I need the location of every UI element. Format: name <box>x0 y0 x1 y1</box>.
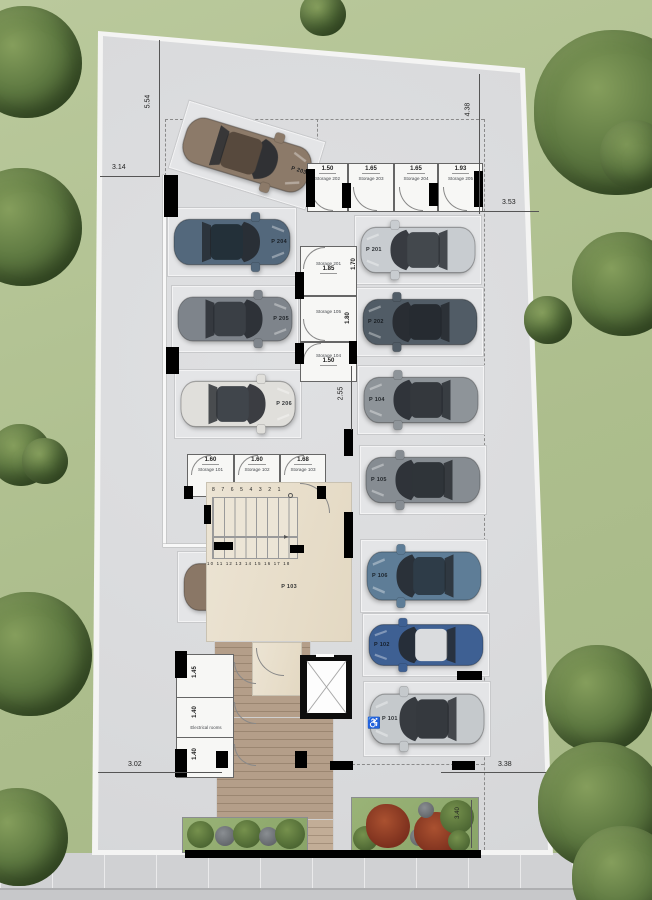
parking-spot-p106: P 106 <box>361 540 487 612</box>
parking-spot-label: P 102 <box>374 642 390 648</box>
wall-segment <box>290 545 304 553</box>
bush <box>448 830 470 852</box>
wall-segment <box>216 751 228 768</box>
door-arc <box>191 455 211 475</box>
wood-deck <box>217 718 333 820</box>
stair-step-numbers-upper: 8 7 6 5 4 3 2 1 <box>212 487 283 493</box>
dimension-label: 3.40 <box>455 807 461 819</box>
parking-spot-label: P 106 <box>372 573 388 579</box>
door-arc <box>399 187 423 211</box>
dimension-label: 1.70 <box>351 258 357 270</box>
parking-spot-label: P 205 <box>273 316 289 322</box>
stair-direction-arrow: ▸ <box>284 532 288 541</box>
parking-spot-p206: P 206 <box>175 370 301 438</box>
tree <box>572 232 652 336</box>
parking-spot-label: P 105 <box>371 477 387 483</box>
bush <box>275 819 305 849</box>
storage-label: Storage 204 <box>403 176 428 181</box>
dimension-label: 2.55 <box>337 387 344 401</box>
dimension-line <box>479 74 480 214</box>
stair-start-marker <box>288 493 293 498</box>
dashed-outline <box>165 119 166 176</box>
storage-label: Storage 203 <box>358 176 383 181</box>
storage-label: Storage 205 <box>448 176 473 181</box>
parking-spot-p104: P 104 <box>358 366 484 434</box>
stone-shrub <box>215 826 235 846</box>
tree <box>300 0 346 36</box>
tree <box>0 6 82 118</box>
dimension-line <box>98 772 222 773</box>
wall-segment <box>429 183 438 206</box>
wall-segment <box>317 486 326 499</box>
parking-spot-label: P 204 <box>271 239 287 245</box>
stair-flight-upper <box>212 497 298 537</box>
curb-wall <box>185 850 481 858</box>
wall-segment <box>295 751 307 768</box>
dimension-label: 3.53 <box>502 199 516 206</box>
room-divider <box>177 697 233 698</box>
dimension-label: 1.65 <box>407 166 425 174</box>
red-shrub <box>366 804 410 848</box>
storage-label: Storage 202 <box>315 176 340 181</box>
wall-segment <box>214 542 233 550</box>
elevator-cross <box>307 661 346 713</box>
storage-label: Storage 105 <box>316 309 341 314</box>
electrical-rooms-label: Electrical rooms <box>178 725 234 730</box>
dimension-line <box>351 366 352 430</box>
wheelchair-icon: ♿ <box>367 717 381 730</box>
ramp <box>303 820 333 852</box>
door-arc <box>303 247 325 269</box>
bush <box>233 820 261 848</box>
wall-segment <box>344 512 353 558</box>
dimension-line <box>481 211 539 212</box>
wall-segment <box>204 505 211 524</box>
dimension-label: 3.14 <box>112 164 126 171</box>
dimension-line <box>159 40 160 176</box>
dimension-label: 1.40 <box>192 748 198 760</box>
tree <box>545 645 652 753</box>
door-arc <box>284 455 304 475</box>
dimension-label: 1.45 <box>192 666 198 678</box>
dimension-line <box>441 772 551 773</box>
parking-spot-p105: P 105 <box>360 446 486 514</box>
elevator-cab <box>307 661 346 713</box>
door-arc <box>303 343 321 361</box>
wall-segment <box>452 761 475 770</box>
stone-shrub <box>418 802 434 818</box>
dimension-label: 1.50 <box>319 166 337 174</box>
dimension-line <box>100 176 160 177</box>
wall-segment <box>330 761 353 770</box>
wall-segment <box>184 486 193 499</box>
dimension-label: 1.40 <box>192 706 198 718</box>
wall-segment <box>295 272 304 299</box>
wall-segment <box>295 343 304 364</box>
door-arc <box>443 187 467 211</box>
dimension-label: 1.80 <box>345 312 351 324</box>
dimension-label: 3.38 <box>498 761 512 768</box>
dimension-label: 1.50 <box>320 358 338 366</box>
stair-step-numbers-lower: 10 11 12 13 14 15 16 17 18 <box>207 561 290 566</box>
planter-left <box>183 818 307 852</box>
wall-segment <box>342 183 351 208</box>
parking-spot-p201: P 201 <box>355 216 481 284</box>
dimension-label: 5.54 <box>144 95 151 109</box>
wall-segment <box>166 347 179 374</box>
tree <box>0 168 82 286</box>
storage-room-201: Storage 201 1.85 1.70 <box>300 246 357 296</box>
wall-segment <box>164 175 178 217</box>
parking-spot-p205: P 205 <box>172 286 298 352</box>
parking-spot-p204: P 204 <box>168 208 296 276</box>
dimension-label: 4.38 <box>464 103 471 117</box>
parking-spot-p102: P 102 <box>363 614 489 676</box>
elevator-door-gap <box>316 654 334 657</box>
parking-spot-label: P 201 <box>366 247 382 253</box>
tree <box>22 438 68 484</box>
tree <box>524 296 572 344</box>
dimension-label: 1.65 <box>362 166 380 174</box>
parking-spot-p101-accessible: ♿ P 101 <box>364 682 490 756</box>
wall-segment <box>349 341 357 364</box>
wall-segment <box>175 651 187 678</box>
parking-spot-p202: P 202 <box>357 288 483 356</box>
wall-segment <box>306 169 315 207</box>
wall-segment <box>344 429 353 456</box>
room-divider <box>177 737 233 738</box>
parking-spot-label: P 202 <box>368 319 384 325</box>
dimension-line <box>471 800 472 848</box>
door-arc <box>238 455 258 475</box>
dimension-label: 3.02 <box>128 761 142 768</box>
wall-segment <box>457 671 482 680</box>
dimension-label: 1.93 <box>452 166 470 174</box>
tree <box>0 592 92 716</box>
bush <box>187 821 214 848</box>
storage-room-203: 1.65 Storage 203 <box>348 163 394 212</box>
storage-room-105: Storage 105 1.80 <box>300 296 357 342</box>
parking-spot-label: P 206 <box>276 401 292 407</box>
road <box>0 890 652 900</box>
floor-plan: P 203 P 204 P 205 P 206 P 103 P 201 P 20… <box>0 0 652 900</box>
door-arc <box>303 319 325 341</box>
parking-spot-label: P 101 <box>382 716 398 722</box>
parking-spot-label: P 103 <box>281 584 297 590</box>
door-arc <box>353 187 377 211</box>
parking-spot-label: P 104 <box>369 397 385 403</box>
